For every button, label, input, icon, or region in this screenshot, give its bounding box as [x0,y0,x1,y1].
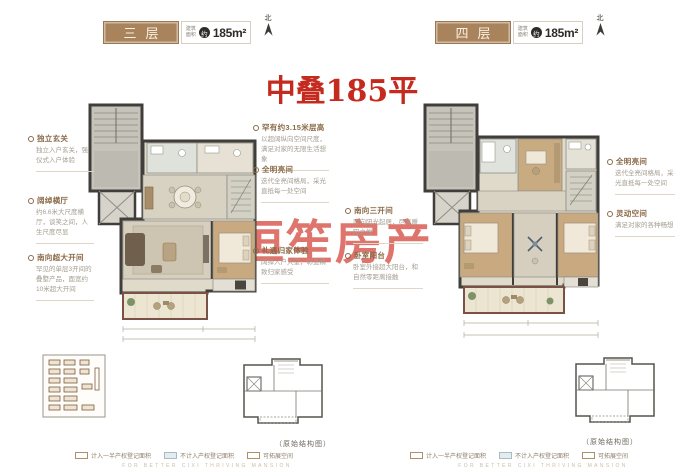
area-box-4f: 建筑面积 约 185m² [513,21,583,44]
floor-badge-3f: 三层 [103,21,179,44]
annotation-wide-hall: 阔绰横厅 约6.6米大尺度横厅，谈笑之间，人生尺度尽显 [28,195,94,244]
compass-needle-icon [264,23,273,36]
area-prefix: 建筑面积 [518,27,528,39]
bullet-icon [253,248,259,254]
legend-item-excluded-area: 不计入产权登记面积 [164,451,234,460]
legend-item-expandable: 可拓展空间 [247,451,293,460]
structure-caption: （原始结构图） [253,439,353,449]
swatch-expandable [247,452,260,459]
area-box-3f: 建筑面积 约 185m² [181,21,251,44]
structure-diagram-3f [234,357,328,440]
north-compass: 北 [260,15,276,36]
bullet-icon [607,211,613,217]
bullet-icon [253,125,259,131]
swatch-excluded-area [164,452,177,459]
annotation-south-bay: 南向超大开间 罕见的单层3开间的叠墅产品，面宽约10米超大开间 [28,252,94,301]
legend-3f: 计入一半产权登记面积 不计入产权登记面积 可拓展空间 [75,451,293,460]
annotation-bright-rooms-4f: 全明亮间 迭代全亮间格局，采光直抵每一处空间 [607,156,675,195]
watermark-title: 中叠185平 [250,66,434,110]
annotation-bedroom-balcony: 卧室阳台 卧室外接超大阳台，和自然零距离接触 [345,250,423,289]
annotation-bright-rooms: 全明亮间 迭代全亮间格局，采光直抵每一处空间 [253,164,329,203]
bullet-icon [28,136,34,142]
floor-plan-4f [418,95,604,352]
floor-plan-3f [85,95,257,352]
legend-item-half-area: 计入一半产权登记面积 [410,451,486,460]
legend-item-excluded-area: 不计入产权登记面积 [499,451,569,460]
footer-slogan: FOR BETTER CIXI THRIVING MANSION [62,463,352,469]
floor-badge-4f: 四层 [435,21,511,44]
area-prefix: 建筑面积 [186,27,196,39]
swatch-expandable [582,452,595,459]
north-label: 北 [260,15,276,22]
bullet-icon [345,253,351,259]
footer-slogan: FOR BETTER CIXI THRIVING MANSION [398,463,680,469]
structure-caption: （原始结构图） [560,437,660,447]
structure-diagram-4f [566,356,660,439]
bullet-icon [28,255,34,261]
compass-needle-icon [596,23,605,36]
swatch-excluded-area [499,452,512,459]
legend-item-expandable: 可拓展空间 [582,451,628,460]
north-label: 北 [592,15,608,22]
legend-4f: 计入一半产权登记面积 不计入产权登记面积 可拓展空间 [410,451,628,460]
bullet-icon [253,167,259,173]
legend-item-half-area: 计入一半产权登记面积 [75,451,151,460]
swatch-half-area [410,452,423,459]
area-value: 185m² [213,26,246,40]
north-compass: 北 [592,15,608,36]
area-value: 185m² [545,26,578,40]
bullet-icon [607,159,613,165]
bullet-icon [28,198,34,204]
site-key-plan [42,354,106,423]
floorplan-brochure: 三层 建筑面积 约 185m² 北 四层 建筑面积 约 185m² 北 中叠18… [0,0,680,474]
annotation-entry-hall: 独立玄关 独立入户玄关，强仪式入户体验 [28,133,94,172]
approx-circle-icon: 约 [199,27,210,38]
bullet-icon [345,208,351,214]
swatch-half-area [75,452,88,459]
approx-circle-icon: 约 [531,27,542,38]
annotation-homecoming: 礼遇归家体验 阔绰入户大堂，彰显精致归家感受 [253,245,329,284]
annotation-three-bays: 南向三开间 南向阳光起居，尽享暖阳之悦 [345,205,423,244]
annotation-flexible-space: 灵动空间 满足对家的各种畅想 [607,208,675,237]
